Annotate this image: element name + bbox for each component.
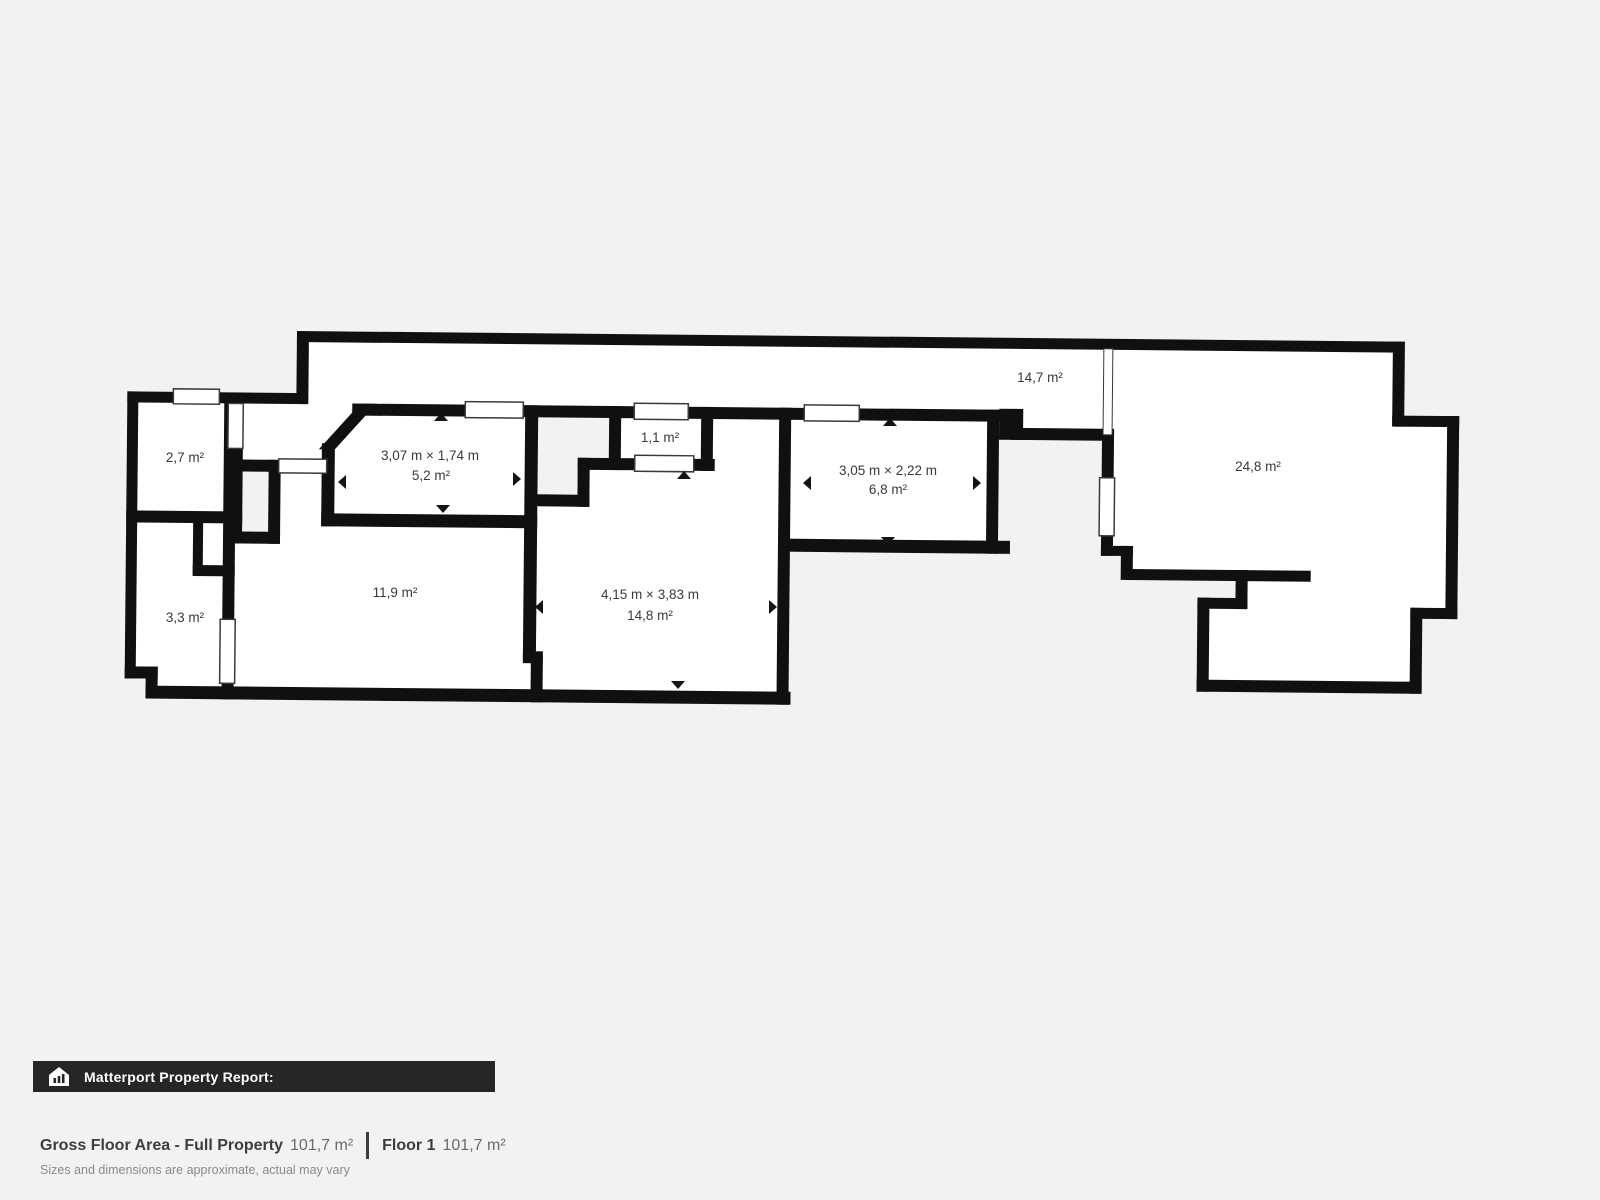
summary-divider [366, 1132, 369, 1159]
disclaimer-text: Sizes and dimensions are approximate, ac… [40, 1163, 350, 1177]
wall [784, 539, 1010, 554]
room-area-label: 24,8 m² [1235, 459, 1281, 474]
matterport-house-icon [48, 1067, 70, 1087]
room-dim-label: 3,05 m × 2,22 m [839, 463, 937, 478]
wall [523, 405, 538, 657]
room-area-label: 1,1 m² [641, 430, 680, 445]
wall [1410, 608, 1423, 694]
floor-1-label: Floor 1 [382, 1137, 435, 1155]
door-marker [220, 619, 236, 683]
wall [1445, 416, 1459, 619]
wall [609, 406, 622, 470]
room-dim-label: 4,15 m × 3,83 m [601, 587, 699, 602]
room-area-label: 14,8 m² [627, 608, 673, 623]
wall [1126, 569, 1311, 582]
window-marker [173, 389, 219, 404]
wall [321, 513, 537, 528]
window-marker [634, 403, 688, 420]
report-banner: Matterport Property Report: [33, 1061, 495, 1092]
room-dim-label: 3,07 m × 1,74 m [381, 448, 479, 463]
door-marker [279, 459, 327, 473]
wall [701, 407, 714, 471]
door-marker [635, 455, 694, 472]
floor-area-summary: Gross Floor Area - Full Property 101,7 m… [40, 1132, 506, 1159]
window-marker [804, 405, 859, 422]
wall [229, 531, 280, 543]
floor-1-value: 101,7 m² [443, 1137, 506, 1155]
door-marker [228, 403, 243, 448]
wall [1011, 428, 1114, 441]
room-area-label: 2,7 m² [166, 450, 205, 465]
room-area-label: 5,2 m² [412, 468, 451, 483]
window-marker [465, 402, 523, 419]
room-area-label: 6,8 m² [869, 482, 908, 497]
room-area-label: 11,9 m² [373, 585, 418, 600]
floor-6-8 [784, 410, 999, 550]
room-area-label: 3,3 m² [166, 610, 205, 625]
wall [1197, 680, 1422, 694]
wall [1197, 598, 1210, 692]
wall [1392, 342, 1405, 427]
opening-marker [1103, 349, 1113, 435]
window-marker [1099, 478, 1115, 536]
report-banner-title: Matterport Property Report: [84, 1069, 274, 1085]
plan-geometry [124, 329, 1459, 711]
wall [986, 410, 999, 554]
gross-floor-area-value: 101,7 m² [290, 1137, 353, 1155]
floor-plan: 2,7 m² 3,3 m² 3,07 m × 1,74 m 5,2 m² 11,… [0, 0, 1600, 1200]
gross-floor-area-label: Gross Floor Area - Full Property [40, 1137, 283, 1155]
room-area-label: 14,7 m² [1017, 370, 1063, 385]
wall [530, 655, 542, 702]
